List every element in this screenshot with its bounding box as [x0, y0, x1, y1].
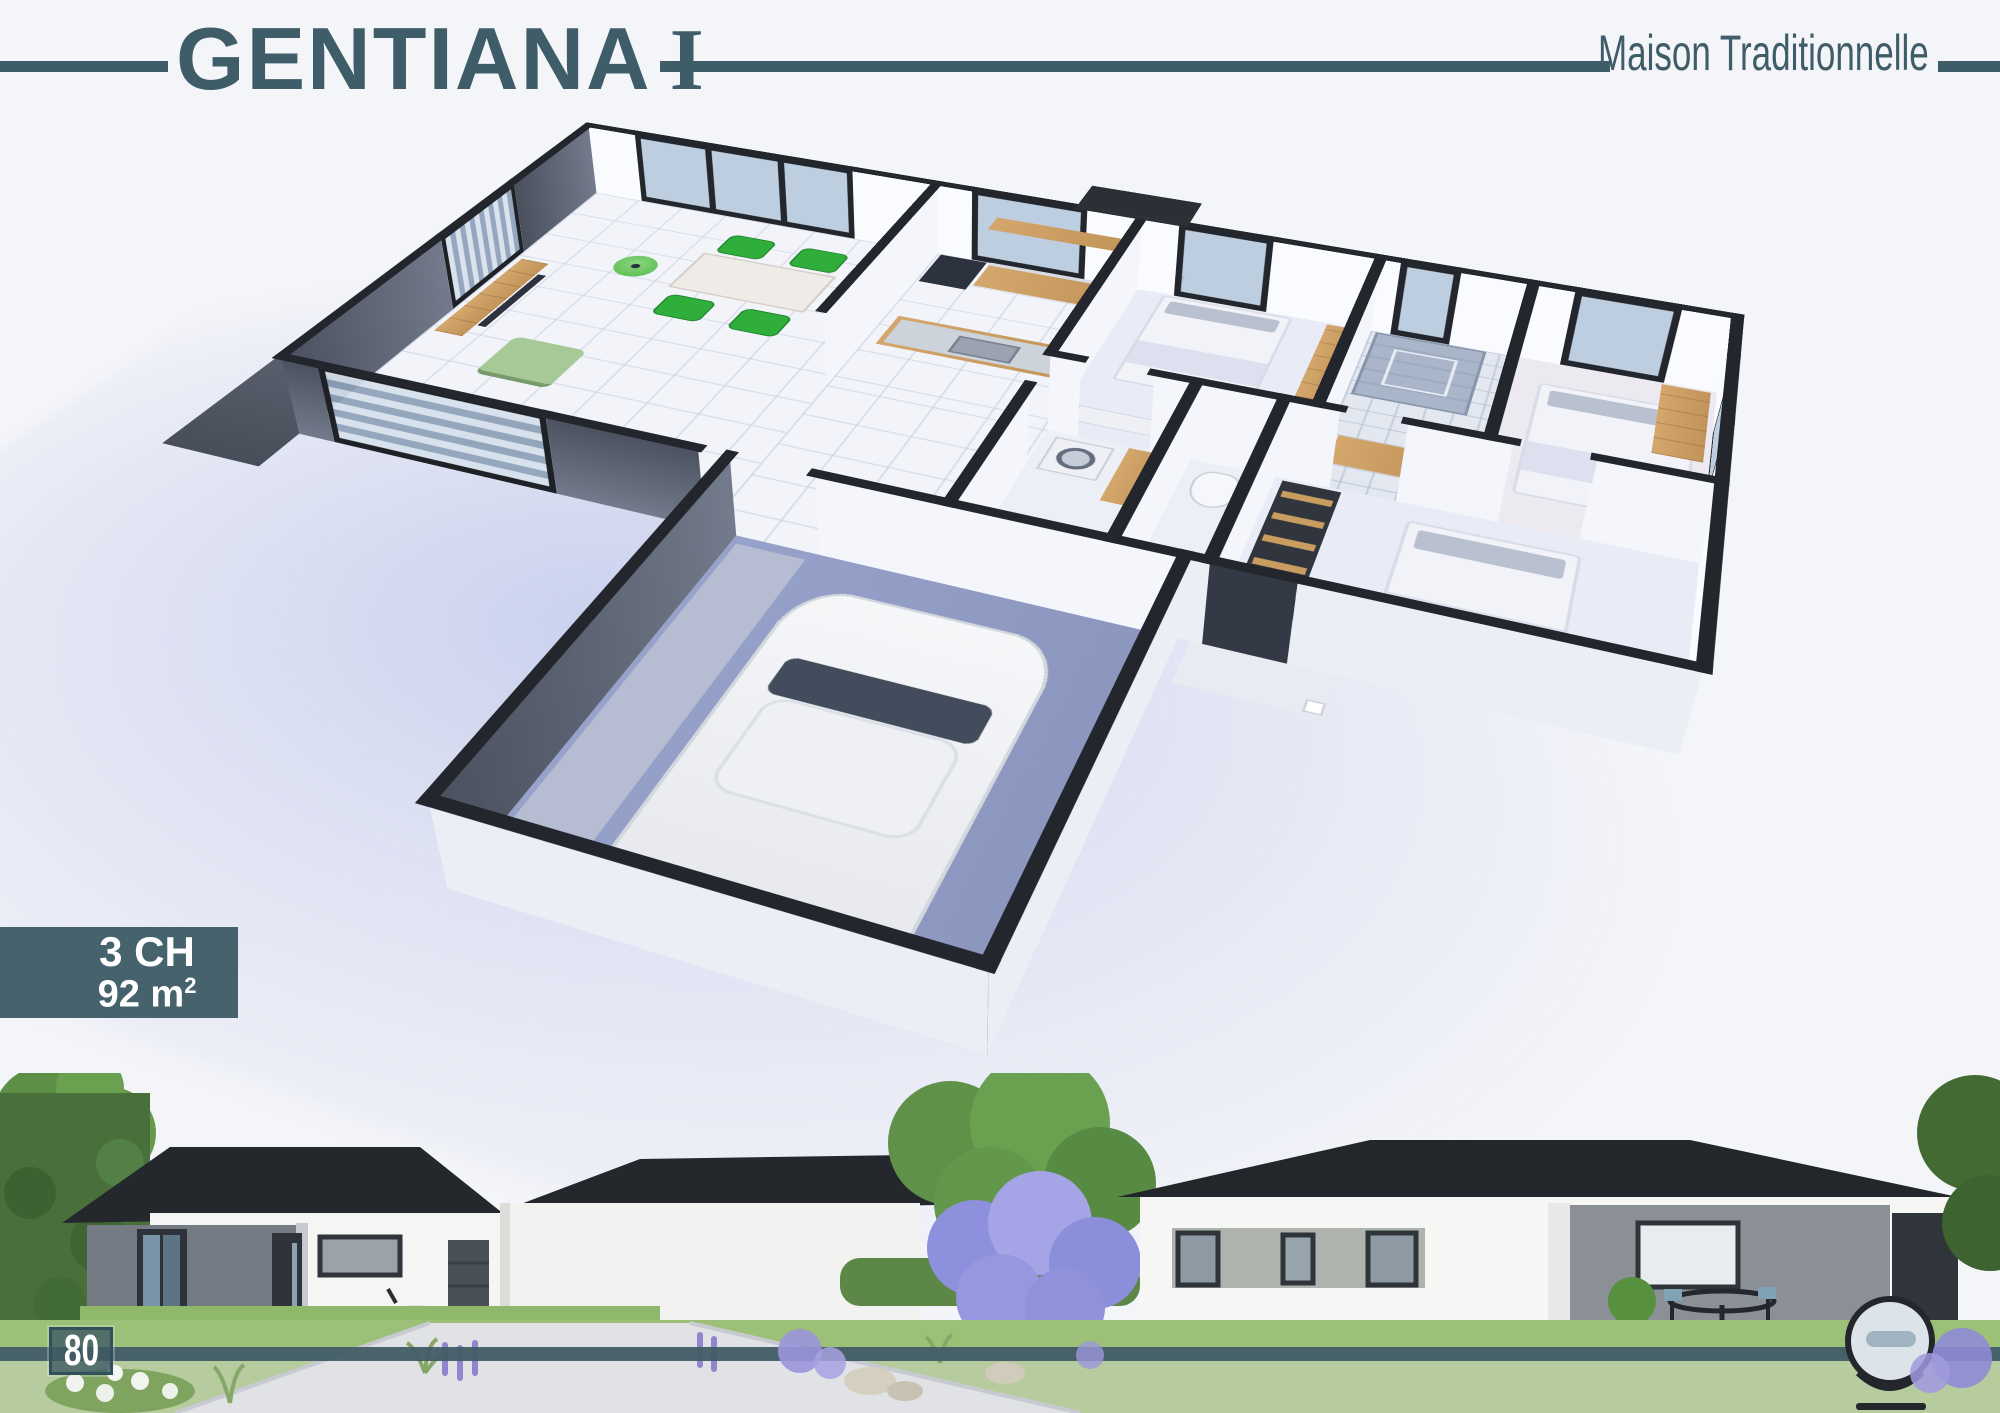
- roof-right: [1117, 1140, 1958, 1197]
- collection-name: Maison Traditionnelle: [1598, 24, 1929, 82]
- header-rule-left: [0, 61, 168, 72]
- catalog-page: GENTIANAI Maison Traditionnelle 3 CH 92 …: [0, 0, 2000, 1413]
- wall-face: [1390, 260, 1462, 344]
- header-rule-middle: [660, 61, 1610, 72]
- page-number: 80: [63, 1326, 98, 1376]
- house-right: [1117, 1140, 1960, 1347]
- footer-band: [0, 1347, 2000, 1361]
- spec-badge: 3 CH 92 m2: [0, 927, 238, 1018]
- surface-area: 92 m2: [56, 974, 238, 1016]
- closet: [1651, 384, 1711, 463]
- page-number-badge: 80: [49, 1327, 113, 1375]
- entry-column: [1302, 699, 1327, 717]
- terrace-window: [1638, 1223, 1738, 1287]
- wall-face: [1048, 353, 1082, 437]
- page-title: GENTIANAI: [176, 8, 706, 111]
- bedrooms-count: 3 CH: [56, 930, 238, 974]
- wall-face: [588, 125, 641, 201]
- terrace-plant: [1608, 1277, 1656, 1325]
- window-left-house: [320, 1237, 400, 1275]
- exterior-photo: [0, 1073, 2000, 1413]
- model-name: GENTIANA: [176, 9, 652, 108]
- header-rule-right: [1938, 61, 2000, 72]
